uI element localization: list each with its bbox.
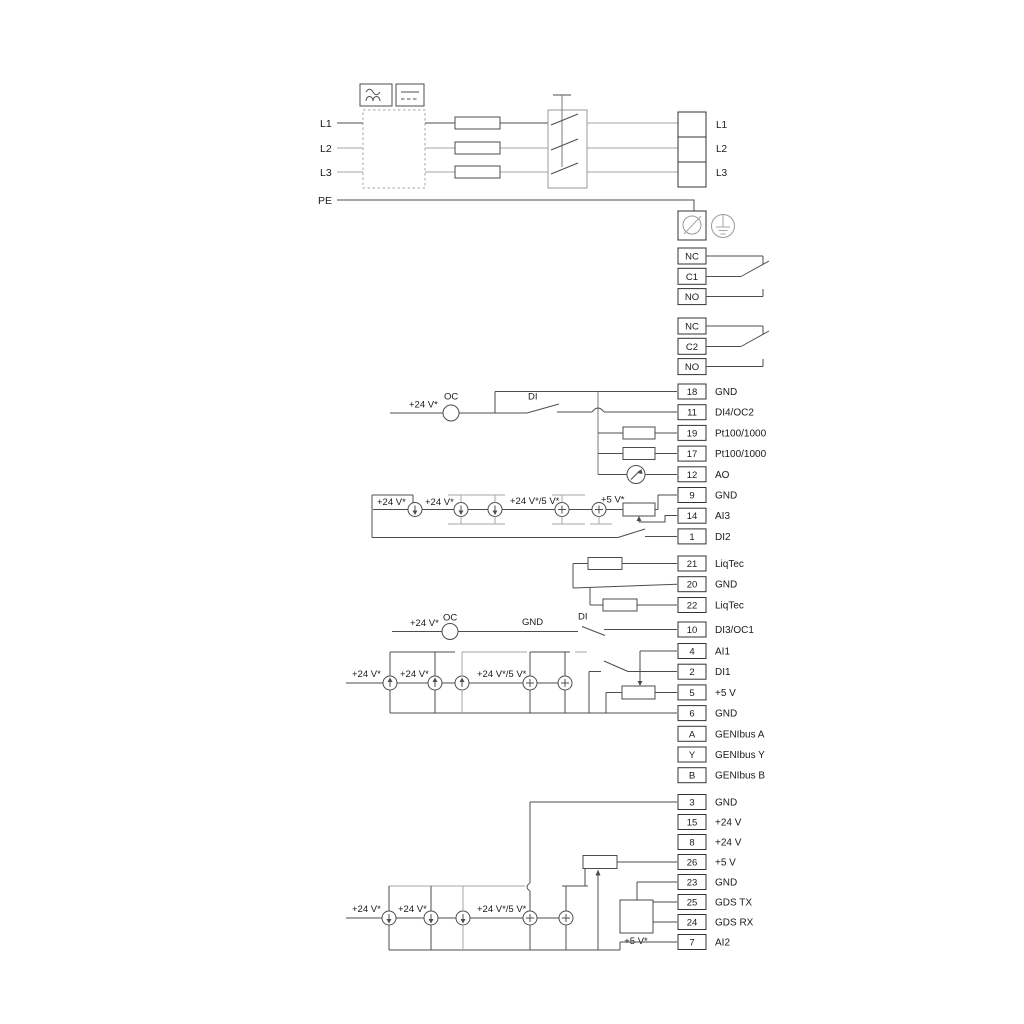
- input-label-l1: L1: [320, 118, 332, 130]
- src1-v5-label: +5 V*: [601, 495, 625, 506]
- terminal-label: DI1: [715, 667, 731, 678]
- oc2-gnd-label: GND: [522, 617, 543, 628]
- terminal-number: 5: [689, 688, 694, 699]
- relay2-c: C2: [686, 342, 698, 353]
- oc2-circle: [442, 624, 458, 640]
- terminal-number: 6: [689, 709, 694, 720]
- terminal-label: GDS RX: [715, 918, 754, 929]
- terminal-label: Pt100/1000: [715, 449, 767, 460]
- terminal-label: GENIbus A: [715, 729, 765, 740]
- input-label-l3: L3: [320, 167, 332, 179]
- terminal-label: LiqTec: [715, 559, 744, 570]
- current-source-icon: [558, 676, 572, 690]
- terminal-strip-comm: 4 2 5 6 A Y B AI1 DI1 +5 V GND GENIbus A…: [678, 644, 765, 783]
- source-row-ai3: +24 V* +24 V* +24 V*/5 V* +5 V*: [372, 495, 677, 538]
- oc1-v24-label: +24 V*: [409, 400, 438, 411]
- terminal-strip-bottom: 3 15 8 26 23 25 24 7 GND +24 V +24 V +5 …: [678, 795, 754, 950]
- terminal-number: 7: [689, 938, 694, 949]
- mains-label-l3: L3: [716, 168, 728, 179]
- relay2-nc: NC: [685, 322, 699, 333]
- terminal-label: Pt100/1000: [715, 428, 767, 439]
- current-sink-icon: [488, 503, 502, 517]
- relay1-contact: [706, 256, 769, 297]
- power-input-section: L1 L2 L3 PE: [318, 84, 735, 240]
- relay1-nc: NC: [685, 252, 699, 263]
- terminal-number: 22: [687, 601, 698, 612]
- terminal-number: 17: [687, 449, 698, 460]
- current-source-up-icon: [383, 676, 397, 690]
- terminal-label: DI4/OC2: [715, 408, 754, 419]
- terminal-label: GND: [715, 491, 737, 502]
- terminal-number: 19: [687, 428, 698, 439]
- mains-label-l1: L1: [716, 120, 728, 131]
- current-source-icon: [523, 676, 537, 690]
- terminal-number: 8: [689, 838, 694, 849]
- terminal-number: 14: [687, 511, 698, 522]
- current-source-icon: [523, 911, 537, 925]
- wiring-diagram: L1 L2 L3 PE: [0, 0, 1024, 1024]
- terminal-label: AI3: [715, 511, 730, 522]
- src1-v24b-label: +24 V*: [425, 497, 454, 508]
- terminal-label: GND: [715, 878, 737, 889]
- terminal-label: GND: [715, 580, 737, 591]
- terminal-number: B: [689, 771, 695, 782]
- terminal-label: GND: [715, 387, 737, 398]
- terminal-strip-a: 18 11 19 17 12 9 14 1 GND DI4/OC2 Pt100/…: [678, 384, 767, 544]
- terminal-number: 26: [687, 858, 698, 869]
- relay1-no: NO: [685, 292, 699, 303]
- wiring-diagram-canvas: L1 L2 L3 PE: [0, 0, 1024, 1024]
- ground-terminal: [678, 211, 706, 240]
- terminal-label: GND: [715, 798, 737, 809]
- current-sink-icon: [382, 911, 396, 925]
- potentiometer-ai3: [623, 503, 677, 522]
- current-sink-icon: [456, 911, 470, 925]
- src3-v24b-label: +24 V*: [398, 904, 427, 915]
- terminal-number: 21: [687, 559, 698, 570]
- oc2-v24-label: +24 V*: [410, 618, 439, 629]
- current-source-icon: [559, 911, 573, 925]
- pt100-sensor-1: [598, 427, 677, 439]
- terminal-label: DI3/OC1: [715, 625, 754, 636]
- relay2-contact: [706, 326, 769, 367]
- src2-v24b-label: +24 V*: [400, 669, 429, 680]
- source-row-ai1: +24 V* +24 V* +24 V*/5 V*: [346, 652, 587, 713]
- terminal-label: LiqTec: [715, 601, 744, 612]
- potentiometer-ai1: [606, 686, 677, 713]
- terminal-label: GENIbus B: [715, 771, 765, 782]
- oc2-di-label: DI: [578, 612, 588, 623]
- relay2-block: NC C2 NO: [678, 318, 769, 375]
- mains-label-l2: L2: [716, 144, 728, 155]
- terminal-label: AI1: [715, 647, 730, 658]
- relay1-c: C1: [686, 272, 698, 283]
- terminal-number: 2: [689, 667, 694, 678]
- terminal-number: 4: [689, 647, 694, 658]
- di2-switch: [372, 529, 677, 538]
- oc1-di-label: DI: [528, 392, 538, 403]
- liqtec-sensor-wiring: [573, 558, 677, 612]
- terminal-label: GDS TX: [715, 898, 752, 909]
- strip-a-wiring: +24 V* OC DI: [390, 392, 677, 510]
- main-switch: [548, 95, 587, 188]
- terminal-number: 9: [689, 491, 694, 502]
- bottom-wiring: +5 V*: [527, 802, 677, 950]
- source-row-ai2: +24 V* +24 V* +24 V*/5 V*: [346, 886, 620, 950]
- src2-v245-label: +24 V*/5 V*: [477, 669, 527, 680]
- terminal-strip-di3: 10 DI3/OC1 +24 V* OC GND DI: [392, 612, 754, 640]
- filter-box: [363, 110, 425, 188]
- terminal-label: +24 V: [715, 818, 742, 829]
- terminal-strip-liqtec: 21 20 22 LiqTec GND LiqTec: [573, 556, 744, 613]
- mains-terminal-block: L1 L2 L3: [678, 112, 728, 187]
- src3-v245-label: +24 V*/5 V*: [477, 904, 527, 915]
- terminal-number: 24: [687, 918, 698, 929]
- fuse-l3: [455, 166, 500, 178]
- terminal-number: A: [689, 729, 696, 740]
- terminal-label: AO: [715, 470, 730, 481]
- pe-wire: [337, 200, 694, 211]
- dc-symbol-icon: [396, 84, 424, 106]
- earth-icon: [712, 215, 735, 238]
- terminal-number: 18: [687, 387, 698, 398]
- terminal-label: +5 V: [715, 688, 736, 699]
- phase-wires: [337, 123, 678, 172]
- fuse-l1: [455, 117, 500, 129]
- terminal-number: 15: [687, 818, 698, 829]
- relay1-block: NC C1 NO: [678, 248, 769, 305]
- input-label-pe: PE: [318, 195, 332, 207]
- current-source-up-icon: [455, 676, 469, 690]
- current-sink-icon: [424, 911, 438, 925]
- pt100-sensor-2: [598, 448, 677, 460]
- src1-v24a-label: +24 V*: [377, 497, 406, 508]
- current-sink-icon: [408, 503, 422, 517]
- src1-v245-label: +24 V*/5 V*: [510, 496, 560, 507]
- terminal-label: DI2: [715, 532, 731, 543]
- fuse-l2: [455, 142, 500, 154]
- terminal-label: +5 V: [715, 858, 736, 869]
- terminal-number: 11: [687, 408, 697, 419]
- src3-v24a-label: +24 V*: [352, 904, 381, 915]
- gds-sensor-box: +5 V*: [620, 900, 677, 947]
- current-source-up-icon: [428, 676, 442, 690]
- analog-output-meter-icon: [598, 466, 677, 484]
- oc2-row: +24 V* OC GND DI: [392, 612, 677, 640]
- terminal-label: AI2: [715, 938, 730, 949]
- current-sink-icon: [454, 503, 468, 517]
- terminal-number: 25: [687, 898, 698, 909]
- oc1-circle: [443, 405, 459, 421]
- terminal-number: 20: [687, 580, 698, 591]
- oc1-oc-label: OC: [444, 392, 458, 403]
- terminal-number: Y: [689, 750, 696, 761]
- terminal-label: +24 V: [715, 838, 742, 849]
- current-source-icon: [555, 503, 569, 517]
- oc2-oc-label: OC: [443, 613, 457, 624]
- terminal-number: 23: [687, 878, 698, 889]
- terminal-number: 3: [689, 798, 694, 809]
- terminal-label: GENIbus Y: [715, 750, 765, 761]
- terminal-number: 1: [689, 532, 694, 543]
- ac-symbol-icon: [360, 84, 392, 106]
- terminal-number: 12: [687, 470, 698, 481]
- relay2-no: NO: [685, 362, 699, 373]
- terminal-label: GND: [715, 709, 737, 720]
- current-source-icon: [592, 503, 606, 517]
- input-label-l2: L2: [320, 143, 332, 155]
- src2-v24a-label: +24 V*: [352, 669, 381, 680]
- terminal-number: 10: [687, 625, 698, 636]
